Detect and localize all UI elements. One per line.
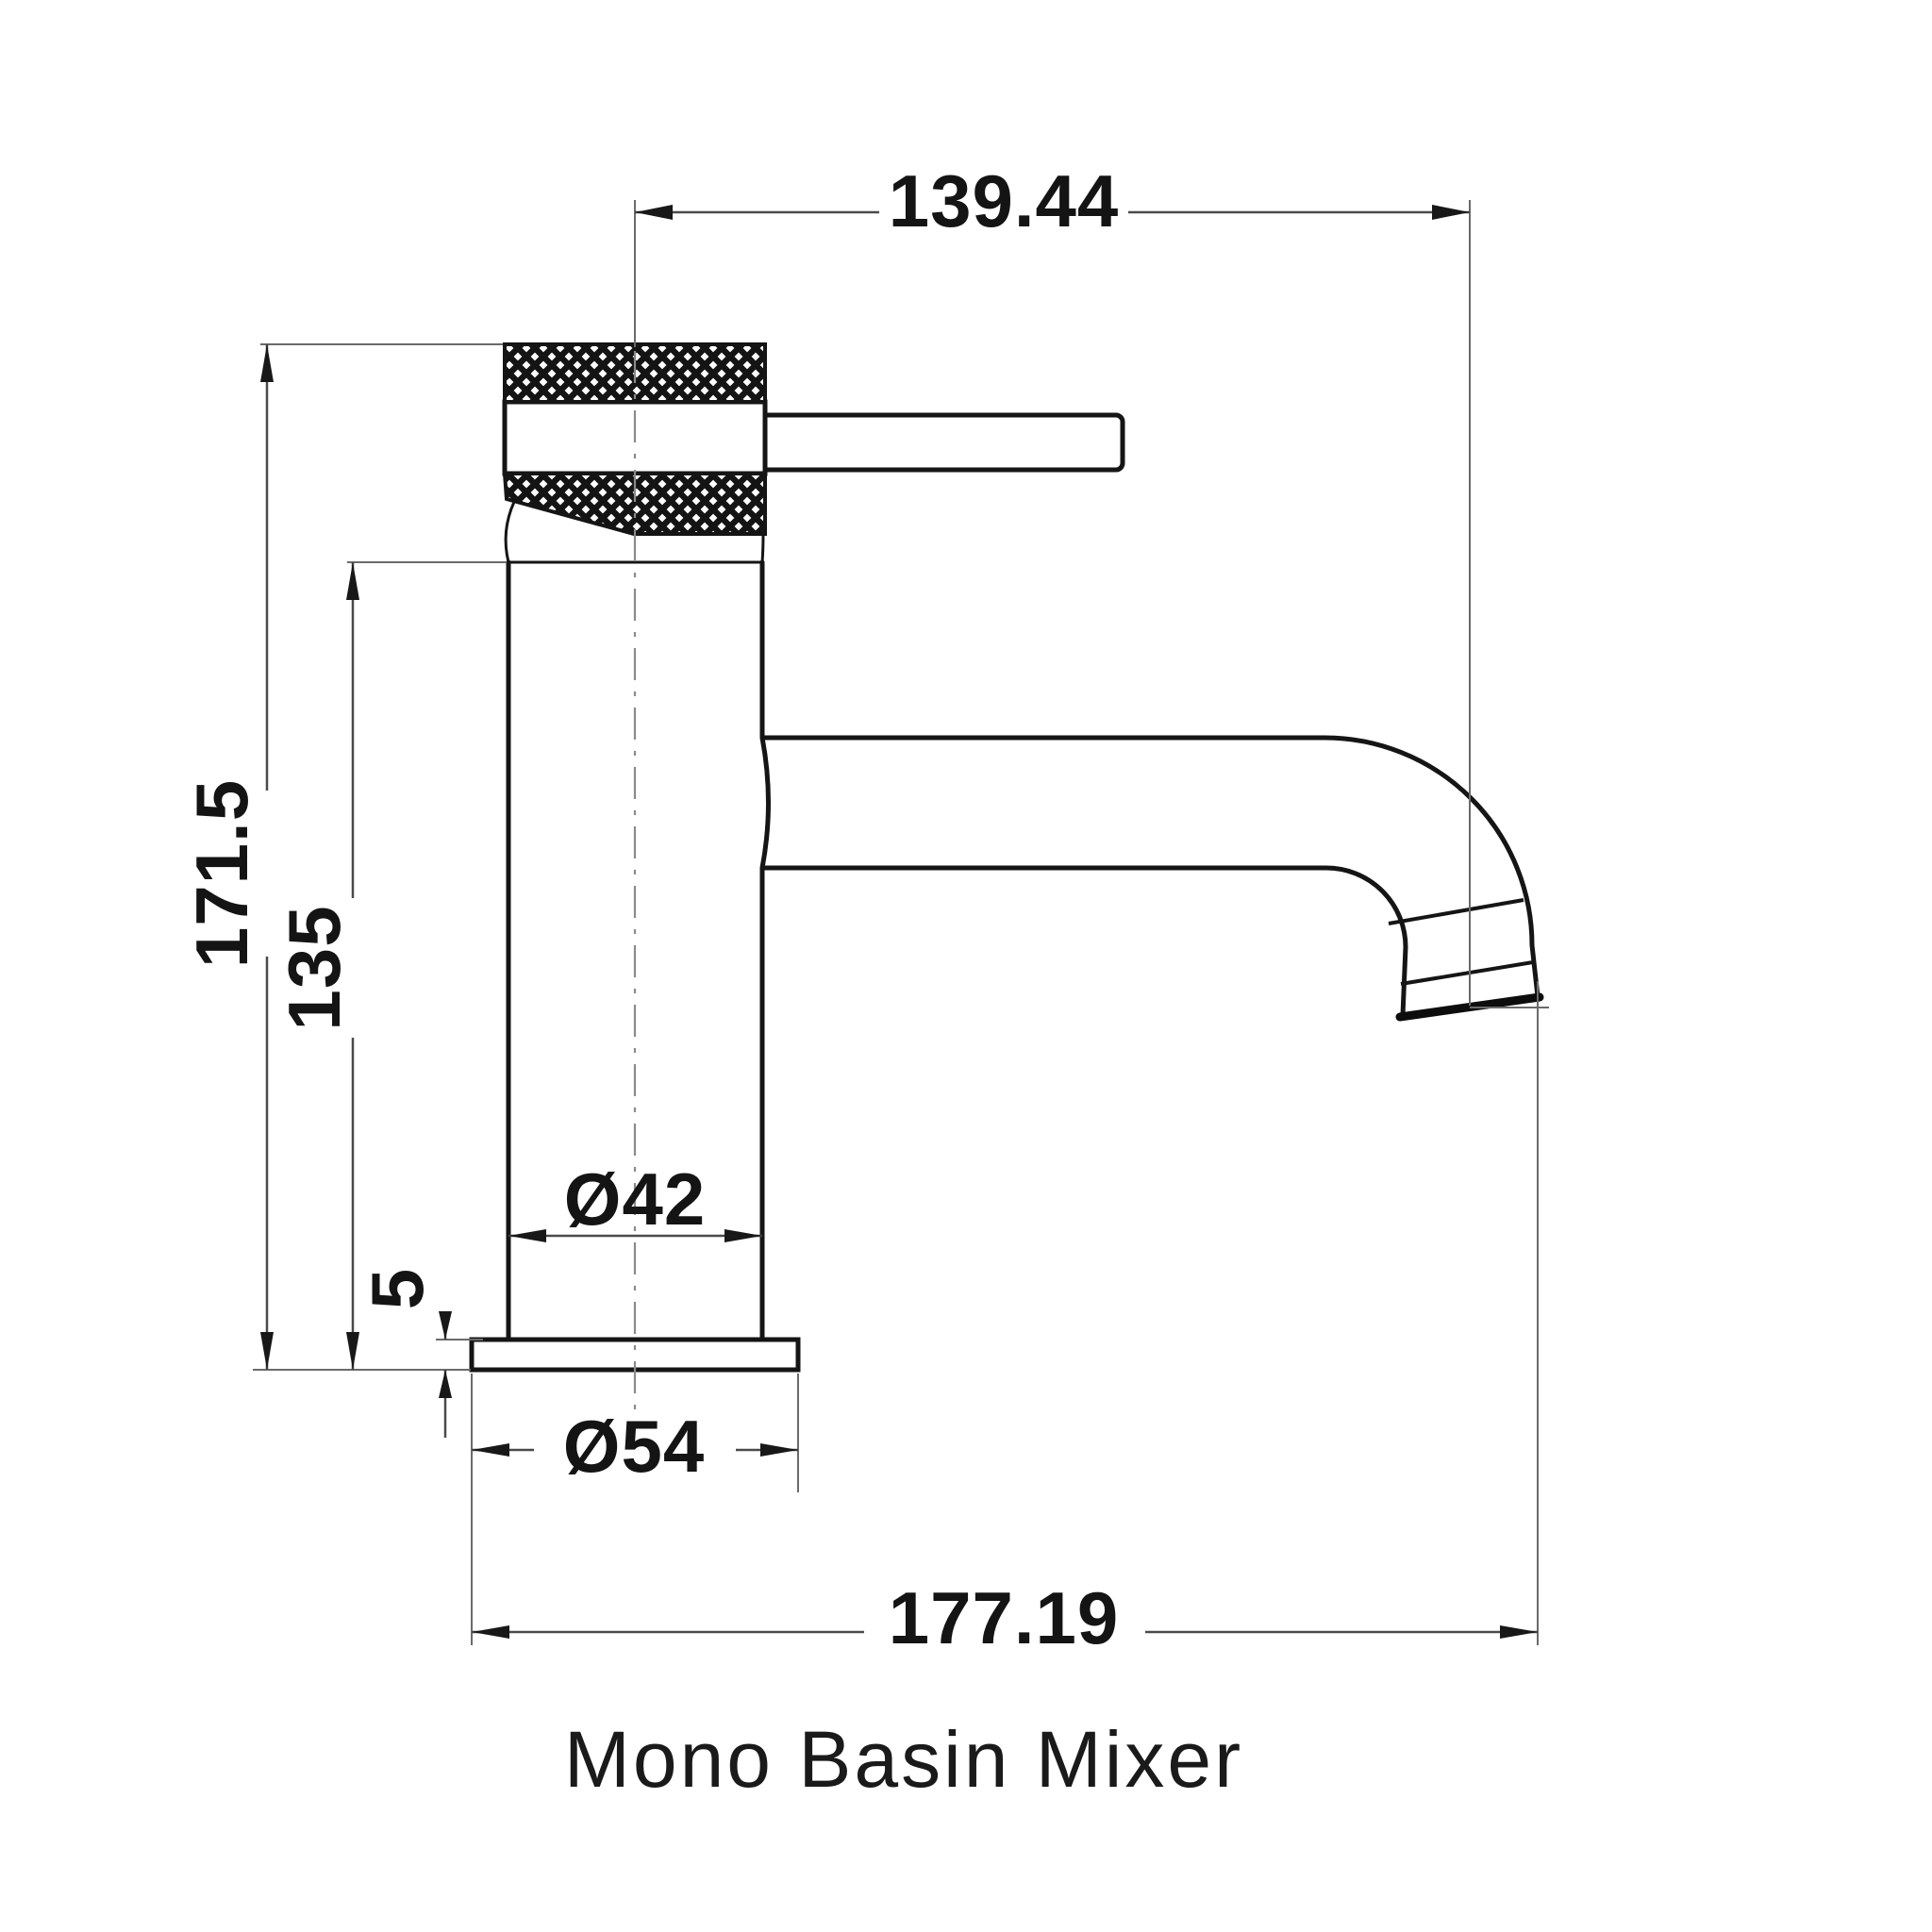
arrow-base-thickness-bottom [439,1370,452,1398]
arrow-spout-reach-right [1432,205,1470,220]
dim-label-body-diameter: Ø42 [564,1158,706,1241]
arrow-overall-height-bottom [260,1332,274,1370]
handle-lever [755,415,1123,470]
arrow-base-diameter-right [760,1443,798,1457]
technical-drawing-page: 139.44 171.5 135 Ø42 5 Ø54 177.19 Mono B… [0,0,1932,1932]
drawing-caption: Mono Basin Mixer [564,1715,1243,1804]
neck-curve-right [762,534,763,562]
arrow-overall-height-top [260,344,274,382]
dim-label-base-thickness: 5 [356,1268,439,1309]
dim-label-body-height: 135 [273,905,356,1030]
arrow-spout-reach-left [635,205,673,220]
arrow-base-thickness-top [439,1311,452,1340]
arrow-body-diameter-left [508,1229,546,1242]
arrow-overall-depth-left [472,1625,509,1639]
arrow-body-height-top [346,562,359,600]
mono-basin-mixer-drawing: 139.44 171.5 135 Ø42 5 Ø54 177.19 Mono B… [0,0,1932,1932]
spout-aerator-line-upper [1389,900,1524,924]
arrow-overall-depth-right [1500,1625,1538,1639]
arrow-body-height-bottom [346,1332,359,1370]
dim-label-base-diameter: Ø54 [563,1405,705,1488]
arrow-body-diameter-right [724,1229,762,1242]
neck-curve-left [506,502,514,562]
spout-outer-bend [1324,738,1538,996]
spout [762,738,1540,1017]
spout-inner-bend [1326,868,1406,1015]
dim-label-overall-depth: 177.19 [889,1576,1120,1659]
dim-label-spout-reach: 139.44 [889,159,1120,242]
dim-label-overall-height: 171.5 [180,779,263,968]
body-right-edge [762,562,769,1340]
arrow-base-diameter-left [472,1443,509,1457]
spout-aerator-line-lower [1401,962,1533,984]
